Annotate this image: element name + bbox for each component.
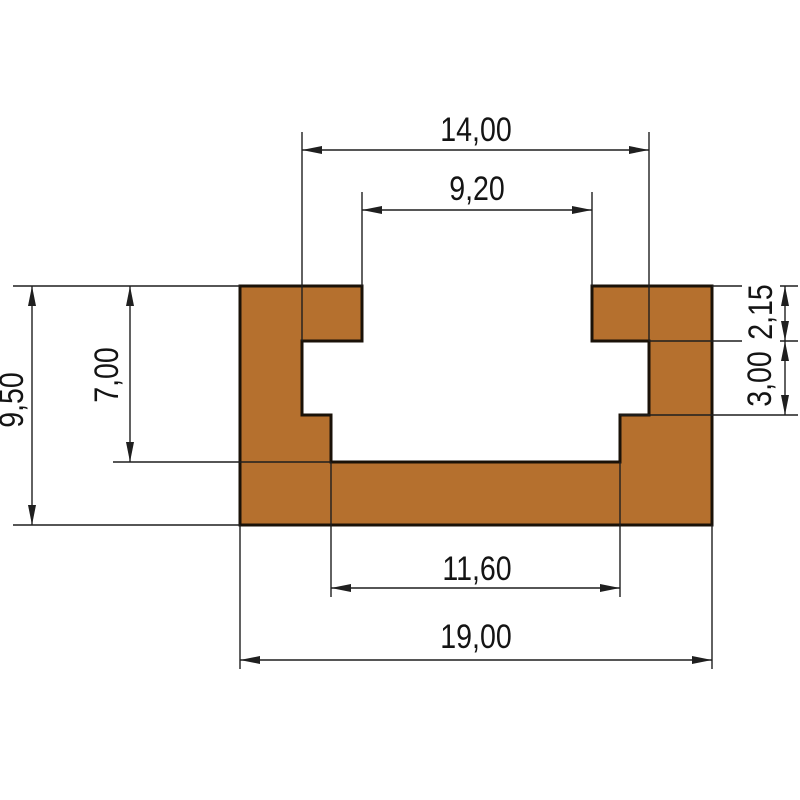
arrowhead xyxy=(331,584,351,592)
arrowhead xyxy=(781,321,789,341)
arrowhead xyxy=(629,146,649,154)
dimension-label-overall-height: 9,50 xyxy=(0,372,29,428)
arrowhead xyxy=(781,341,789,361)
dimension-label-lip-thickness: 2,15 xyxy=(742,282,780,343)
arrowhead xyxy=(692,656,712,664)
arrowhead xyxy=(28,286,36,306)
arrowhead xyxy=(28,505,36,525)
arrowhead xyxy=(781,395,789,415)
arrowhead xyxy=(126,442,134,462)
arrowhead xyxy=(600,584,620,592)
arrowhead xyxy=(240,656,260,664)
arrowhead xyxy=(302,146,322,154)
dimension-label-slot-opening-width: 9,20 xyxy=(449,172,505,206)
arrowhead xyxy=(126,286,134,306)
dimension-label-undercut-height: 3,00 xyxy=(741,349,779,410)
arrowhead xyxy=(572,206,592,214)
t-slot-profile-shape xyxy=(240,286,712,525)
dimension-label-slot-depth: 7,00 xyxy=(90,347,124,403)
dimension-label-overall-width: 19,00 xyxy=(440,620,511,654)
arrowhead xyxy=(362,206,382,214)
dimension-label-inner-bottom-width: 11,60 xyxy=(442,552,511,586)
arrowhead xyxy=(781,286,789,306)
technical-drawing-canvas: 14,00 9,20 11,60 19,00 9,50 7,00 2,15 3,… xyxy=(0,0,800,800)
dimension-label-top-width: 14,00 xyxy=(440,113,511,147)
